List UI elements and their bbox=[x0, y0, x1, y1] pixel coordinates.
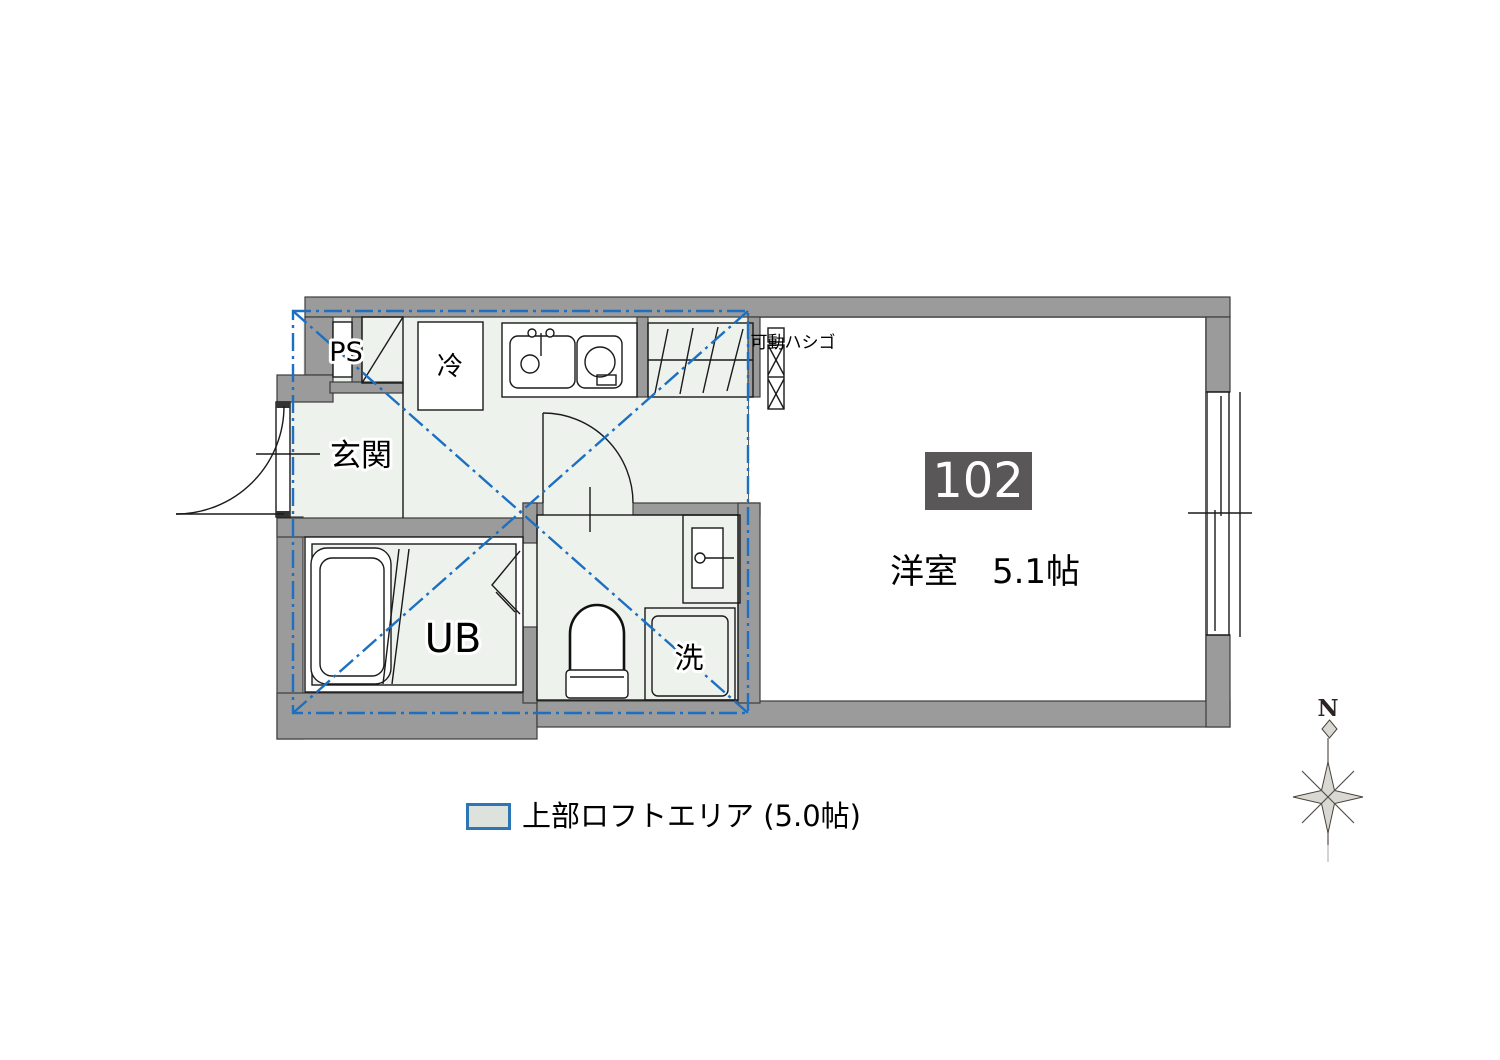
wall-top bbox=[305, 297, 1230, 317]
ps-label: PS bbox=[329, 337, 362, 368]
ladder-label: 可動ハシゴ bbox=[751, 332, 836, 353]
entrance-label: 玄関 bbox=[330, 438, 392, 474]
floor-plan-svg: 102 PS 冷 玄関 UB 洗 洋室 5.1帖 可動ハシゴ N bbox=[0, 0, 1500, 1060]
unit-bath-area bbox=[305, 537, 523, 692]
unit-badge: 102 bbox=[925, 452, 1032, 510]
entrance-door-swing-arc bbox=[176, 406, 284, 514]
entrance-door-jamb-top bbox=[276, 402, 290, 408]
wall-entry-protrusion bbox=[277, 375, 333, 402]
unit-badge-number: 102 bbox=[932, 453, 1024, 509]
loft-area-swatch-icon bbox=[466, 803, 511, 830]
compass-north-label: N bbox=[1317, 695, 1338, 722]
wall-right-upper bbox=[1206, 317, 1230, 392]
wall-entrance-bath-band bbox=[277, 518, 537, 537]
faucet-knob-icon bbox=[546, 329, 554, 337]
toilet-tank bbox=[566, 670, 628, 698]
fridge-label: 冷 bbox=[437, 352, 463, 382]
unit-bath-label: UB bbox=[425, 616, 482, 662]
bathtub-outer bbox=[311, 548, 391, 684]
faucet-knob-icon bbox=[528, 329, 536, 337]
wall-bottom-left bbox=[277, 693, 537, 739]
legend-loft: 上部ロフトエリア (5.0帖) bbox=[466, 802, 861, 831]
kitchen-sink bbox=[510, 336, 575, 388]
compass: N bbox=[1293, 695, 1363, 862]
loft-area-label: 上部ロフトエリア (5.0帖) bbox=[522, 802, 861, 831]
compass-diamond bbox=[1322, 720, 1337, 738]
toilet-bowl-icon bbox=[570, 605, 624, 672]
wall-right-lower bbox=[1206, 635, 1230, 727]
wall-kitchen-partition bbox=[748, 317, 760, 397]
floor-plan-page: 102 PS 冷 玄関 UB 洗 洋室 5.1帖 可動ハシゴ N 上部ロフトエリ… bbox=[0, 0, 1500, 1060]
wall-bath-toilet-upper bbox=[523, 503, 537, 543]
wall-shelf-divider bbox=[637, 317, 648, 397]
wall-bath-toilet-lower bbox=[523, 627, 537, 703]
washer-label: 洗 bbox=[674, 641, 703, 675]
main-room-label: 洋室 5.1帖 bbox=[890, 552, 1080, 592]
